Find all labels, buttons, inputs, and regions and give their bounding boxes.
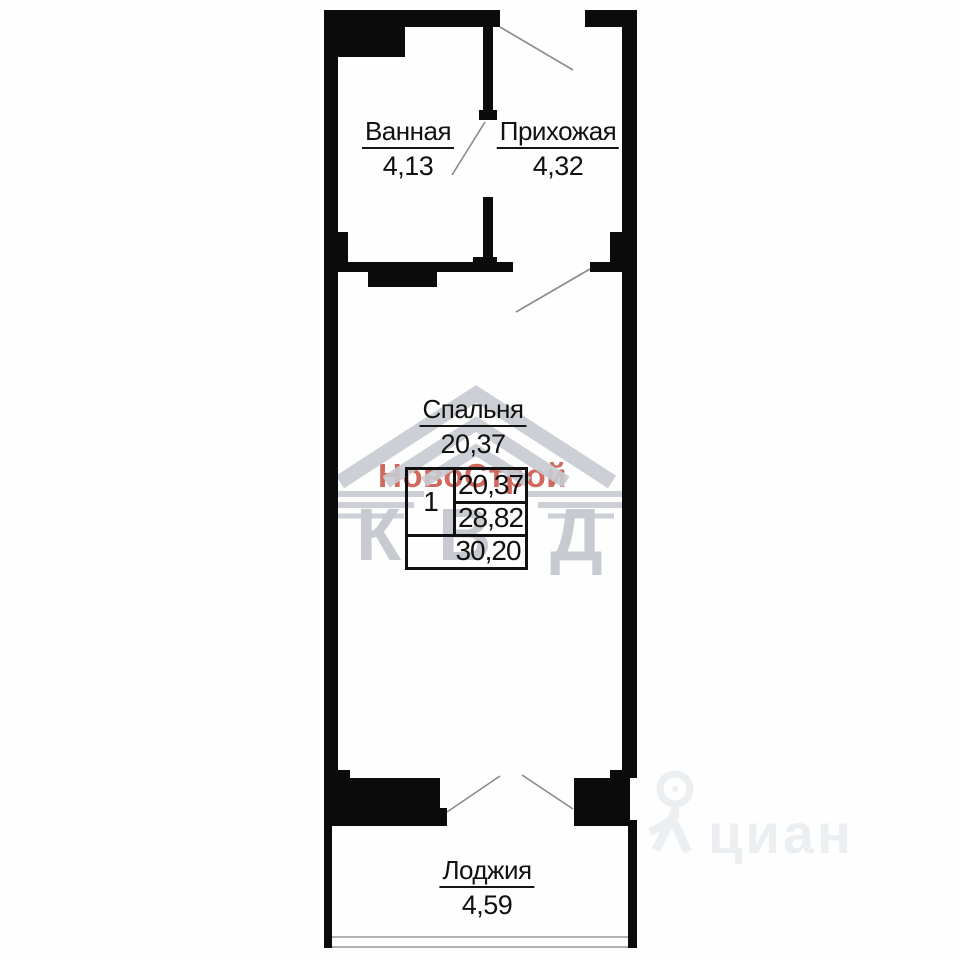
wall-left-outer bbox=[324, 10, 338, 778]
hallway-area: 4,32 bbox=[533, 151, 584, 181]
loggia-wall-right bbox=[628, 820, 637, 948]
hallway-name: Прихожая bbox=[497, 116, 619, 149]
room-label-bathroom: Ванная 4,13 bbox=[362, 116, 454, 181]
table-rooms-count: 1 bbox=[408, 470, 453, 534]
bedroom-door-swing bbox=[516, 269, 590, 312]
room-label-loggia: Лоджия 4,59 bbox=[439, 855, 534, 920]
balcony-door-swing-right bbox=[522, 775, 573, 809]
apartment-summary-table: 1 20,37 28,82 30,20 bbox=[405, 467, 528, 570]
bathroom-hallway-divider-top bbox=[483, 27, 493, 112]
wall-top-left bbox=[324, 10, 500, 27]
entrance-door-swing bbox=[500, 27, 573, 70]
loggia-glazing-band bbox=[332, 936, 628, 948]
room-label-bedroom: Спальня 20,37 bbox=[420, 394, 527, 459]
balcony-door-swing-left bbox=[447, 776, 500, 812]
bathroom-area: 4,13 bbox=[383, 151, 434, 181]
wall-right-outer bbox=[622, 10, 637, 778]
hallway-corner-block bbox=[610, 232, 637, 264]
bathroom-door-jamb-top bbox=[479, 110, 497, 120]
loggia-wall-left bbox=[324, 778, 332, 948]
bedroom-area: 20,37 bbox=[440, 429, 505, 459]
loggia-name: Лоджия bbox=[439, 855, 534, 888]
bathroom-corner-pilaster bbox=[337, 232, 348, 262]
room-label-hallway: Прихожая 4,32 bbox=[497, 116, 619, 181]
bedroom-name: Спальня bbox=[420, 394, 527, 427]
window-wall-right-main bbox=[574, 778, 630, 826]
window-wall-left-main bbox=[325, 778, 440, 809]
floor-plan-canvas: К В Д НовоСтрой циан bbox=[0, 0, 960, 960]
table-living-area: 20,37 bbox=[456, 468, 525, 501]
bedroom-wardrobe-block bbox=[368, 272, 437, 287]
bathroom-name: Ванная bbox=[362, 116, 454, 149]
bathroom-shaft-block bbox=[338, 27, 405, 57]
loggia-area: 4,59 bbox=[462, 890, 513, 920]
window-wall-left-sill bbox=[325, 808, 447, 826]
table-area-without-loggia: 28,82 bbox=[456, 501, 525, 534]
bedroom-divider-wall-left bbox=[338, 262, 513, 272]
bathroom-hallway-divider-bottom bbox=[483, 197, 493, 262]
table-total-area: 30,20 bbox=[451, 534, 525, 567]
bathroom-door-swing bbox=[452, 122, 485, 175]
